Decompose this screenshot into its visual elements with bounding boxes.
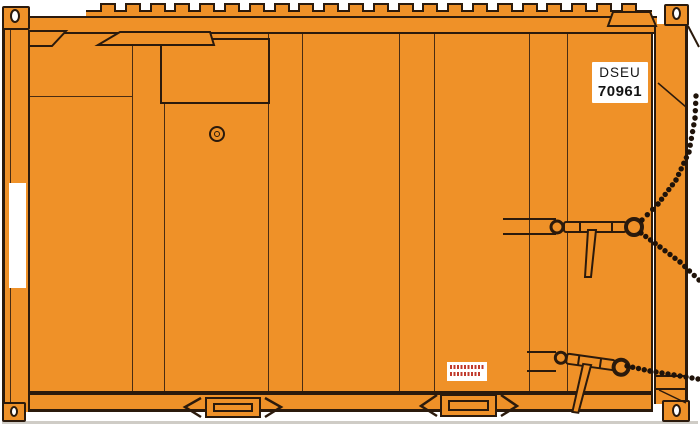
corner-casting-hole-icon [672, 7, 681, 20]
roof-rib [422, 3, 438, 12]
corner-casting-bottom-left [2, 402, 26, 422]
container-illustration: DSEU 70961 [0, 0, 700, 427]
door-fitting-center [214, 131, 220, 137]
chain-link [693, 101, 698, 106]
roof-rib [150, 3, 166, 12]
panel-seam [434, 34, 435, 391]
roof-rib [571, 3, 587, 12]
corner-casting-top-right [664, 4, 689, 26]
roof-rib [348, 3, 364, 12]
roof-rib [174, 3, 190, 12]
door-fitting-icon [209, 126, 225, 142]
warning-text-line [450, 365, 484, 369]
right-end-panel [654, 24, 688, 404]
roof-rib [546, 3, 562, 12]
panel-seam [567, 34, 568, 391]
chain-link [689, 375, 694, 380]
forklift-pocket [205, 397, 261, 418]
end-sill-line [656, 375, 685, 377]
chain-link [693, 93, 698, 98]
access-hatch [160, 38, 270, 104]
chain-link [689, 136, 694, 141]
roof-rib [199, 3, 215, 12]
panel-seam [399, 34, 400, 391]
ground-shadow-line [2, 421, 698, 424]
forklift-pocket [440, 394, 497, 417]
top-rail [28, 16, 657, 34]
chain-link [688, 143, 693, 148]
white-stripe [9, 183, 26, 288]
corner-casting-top-left [2, 6, 30, 30]
roof-rib [472, 3, 488, 12]
roof-rib [125, 3, 141, 12]
forklift-pocket-opening [213, 403, 253, 412]
corner-casting-hole-icon [672, 404, 681, 417]
container-side-body [28, 34, 653, 393]
roof-rib [323, 3, 339, 12]
forklift-pocket-opening [448, 400, 489, 411]
chain-link [691, 122, 696, 127]
roof-rib [621, 3, 637, 12]
unit-id-placard: DSEU 70961 [592, 62, 648, 103]
corner-casting-bottom-right [662, 400, 690, 422]
roof-rib [522, 3, 538, 12]
roof-rib [224, 3, 240, 12]
chain-link [695, 376, 700, 381]
warning-text-line [450, 372, 481, 376]
reporting-mark: DSEU [592, 64, 648, 82]
chain-link [692, 273, 697, 278]
warning-placard [447, 362, 487, 381]
panel-seam [529, 34, 530, 391]
roof-rib [100, 3, 116, 12]
roof-rib [596, 3, 612, 12]
chain-link [692, 115, 697, 120]
corner-casting-hole-icon [10, 406, 18, 417]
roof-rib [274, 3, 290, 12]
chain-link [693, 108, 698, 113]
roof-rib [373, 3, 389, 12]
roof-rib [298, 3, 314, 12]
unit-number: 70961 [592, 82, 648, 101]
panel-seam [132, 34, 133, 391]
chain-link [690, 129, 695, 134]
roof-rib [398, 3, 414, 12]
chain-link [696, 277, 700, 282]
bottom-rail [28, 393, 653, 412]
chain-link [692, 115, 697, 120]
corner-casting-hole-icon [10, 9, 20, 23]
end-sill-line [656, 388, 685, 390]
roof-rib [497, 3, 513, 12]
panel-seam [302, 34, 303, 391]
roof-rib [249, 3, 265, 12]
panel-seam-horizontal [30, 96, 132, 97]
roof-rib [447, 3, 463, 12]
